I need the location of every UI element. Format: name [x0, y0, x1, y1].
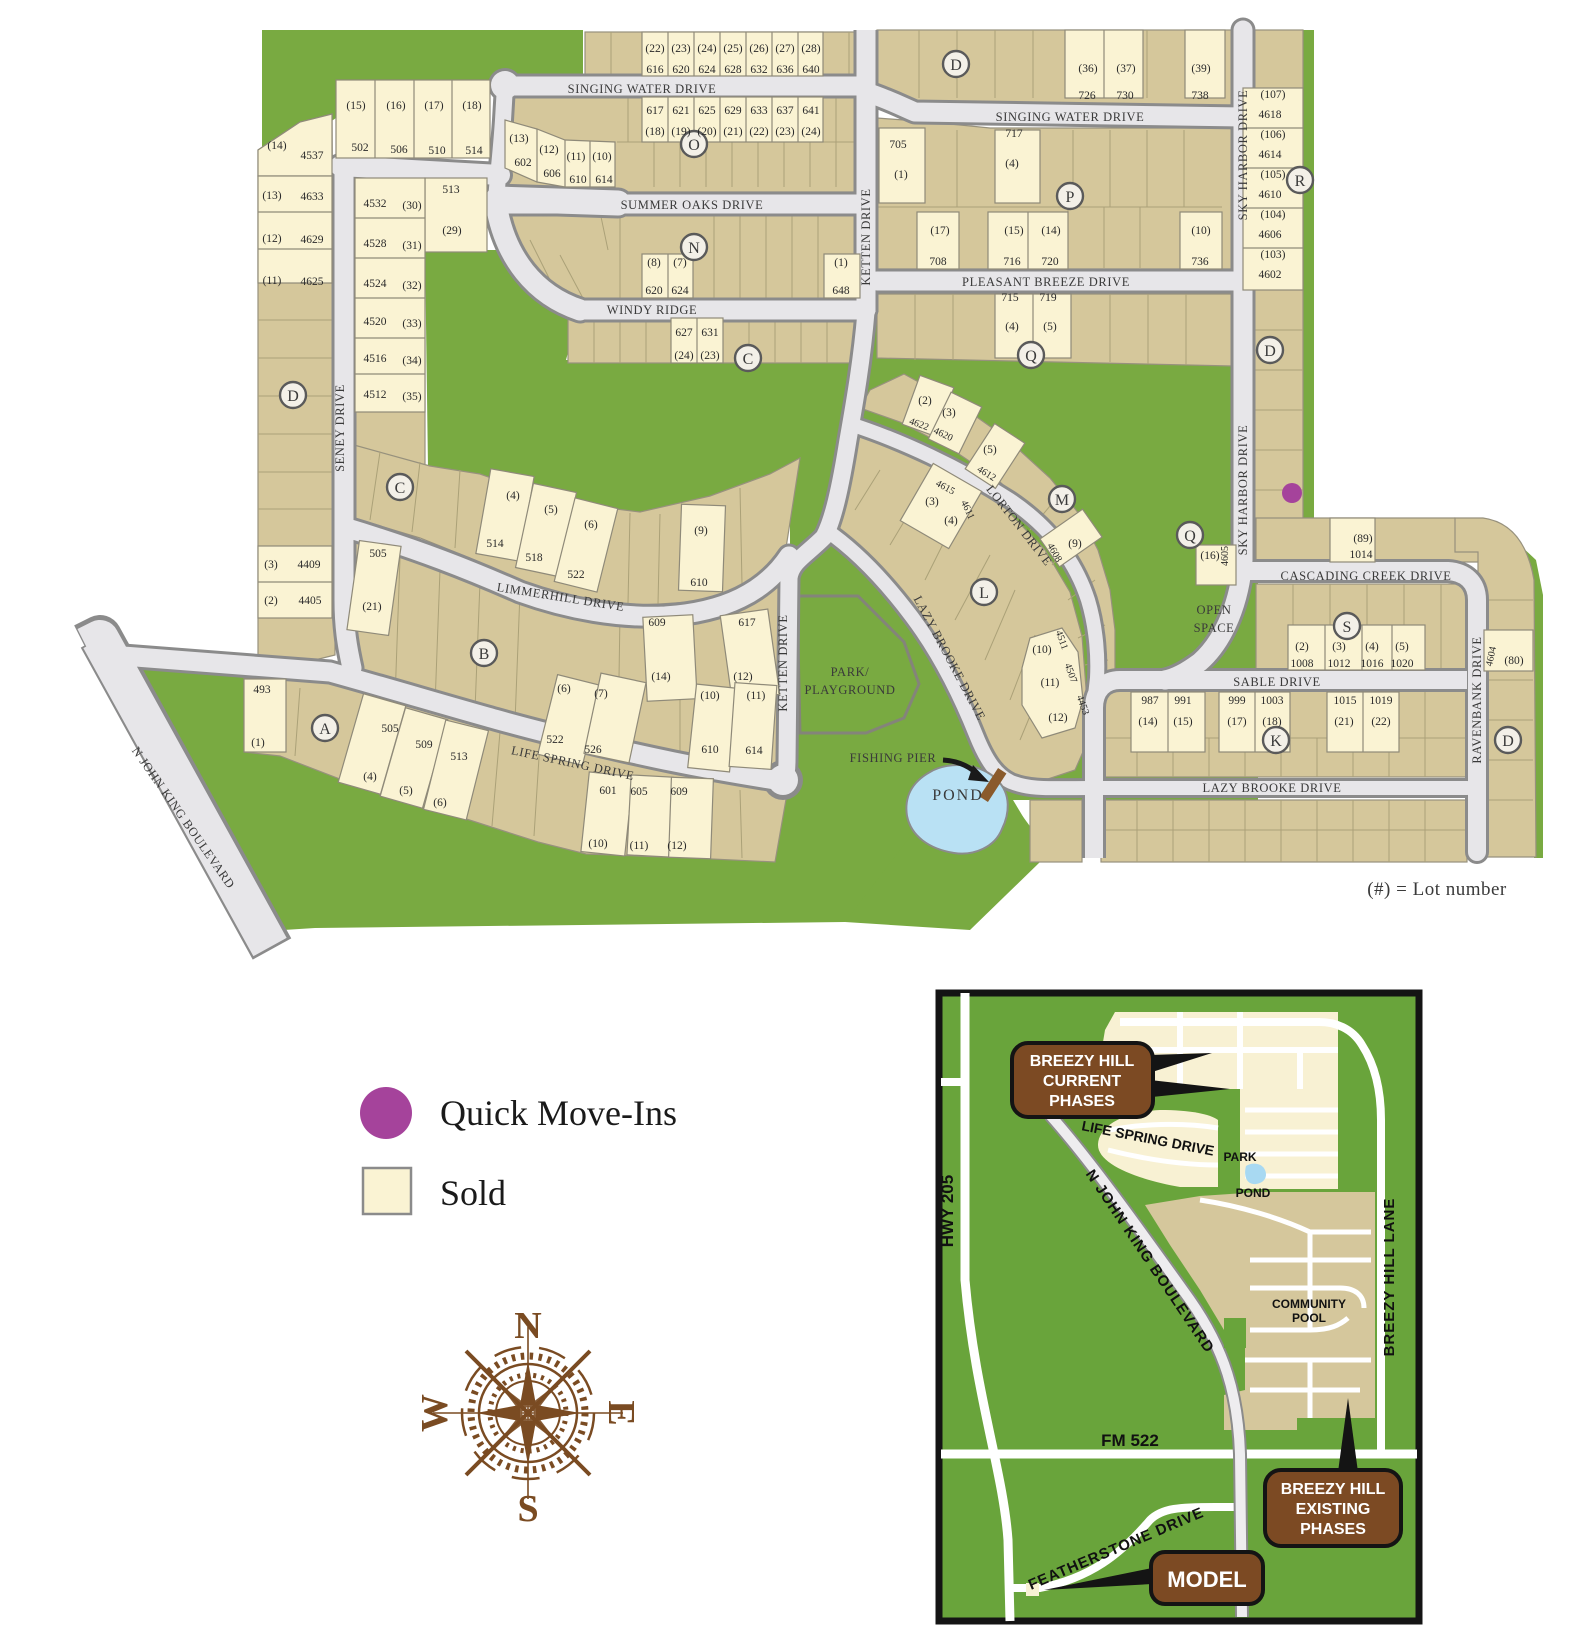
svg-text:614: 614 [595, 174, 613, 186]
svg-text:(11): (11) [1041, 677, 1060, 689]
svg-text:C: C [395, 480, 406, 497]
svg-text:(37): (37) [1116, 63, 1135, 75]
svg-text:4633: 4633 [301, 191, 324, 203]
svg-text:606: 606 [543, 168, 561, 180]
svg-text:631: 631 [701, 327, 719, 339]
svg-text:628: 628 [724, 64, 742, 76]
svg-text:M: M [1055, 492, 1069, 509]
svg-text:736: 736 [1191, 256, 1209, 268]
svg-text:4618: 4618 [1259, 109, 1282, 121]
svg-text:PLAYGROUND: PLAYGROUND [805, 683, 896, 697]
svg-text:(11): (11) [567, 151, 586, 163]
svg-text:(7): (7) [594, 688, 608, 700]
svg-text:OPEN: OPEN [1196, 603, 1231, 617]
svg-text:717: 717 [1005, 128, 1023, 140]
svg-text:522: 522 [567, 569, 585, 581]
svg-text:648: 648 [832, 285, 850, 297]
svg-text:(19): (19) [671, 126, 690, 138]
svg-text:(10): (10) [592, 151, 611, 163]
svg-text:(5): (5) [399, 785, 413, 797]
svg-text:522: 522 [546, 734, 564, 746]
svg-text:R: R [1295, 173, 1306, 190]
svg-text:4512: 4512 [364, 389, 387, 401]
svg-text:S: S [517, 1488, 538, 1530]
svg-text:502: 502 [351, 142, 369, 154]
svg-text:506: 506 [390, 144, 408, 156]
svg-text:(23): (23) [700, 350, 719, 362]
svg-text:(105): (105) [1261, 169, 1286, 181]
svg-text:(103): (103) [1261, 249, 1286, 261]
svg-text:EXISTING: EXISTING [1296, 1501, 1371, 1518]
svg-text:(30): (30) [402, 200, 421, 212]
svg-text:BREEZY HILL LANE: BREEZY HILL LANE [1381, 1198, 1398, 1357]
svg-text:991: 991 [1174, 695, 1192, 707]
svg-text:(1): (1) [894, 169, 908, 181]
svg-text:SKY HARBOR DRIVE: SKY HARBOR DRIVE [1236, 90, 1250, 221]
svg-text:POND: POND [1236, 1186, 1271, 1200]
svg-text:(24): (24) [801, 126, 820, 138]
svg-text:4516: 4516 [364, 353, 387, 365]
svg-text:E: E [600, 1400, 642, 1425]
svg-text:PHASES: PHASES [1300, 1521, 1366, 1538]
svg-text:(10): (10) [700, 690, 719, 702]
svg-text:(104): (104) [1261, 209, 1286, 221]
svg-text:(6): (6) [433, 797, 447, 809]
svg-text:SKY HARBOR DRIVE: SKY HARBOR DRIVE [1236, 425, 1250, 556]
svg-text:(5): (5) [983, 444, 997, 456]
svg-text:(10): (10) [1032, 644, 1051, 656]
svg-text:Quick Move-Ins: Quick Move-Ins [440, 1093, 677, 1133]
svg-text:(12): (12) [667, 840, 686, 852]
svg-text:(2): (2) [1295, 641, 1309, 653]
svg-text:1016: 1016 [1361, 658, 1384, 670]
svg-text:(15): (15) [1004, 225, 1023, 237]
svg-text:(2): (2) [264, 595, 278, 607]
svg-text:617: 617 [646, 105, 664, 117]
svg-text:CASCADING CREEK DRIVE: CASCADING CREEK DRIVE [1281, 569, 1452, 583]
svg-text:(9): (9) [694, 525, 708, 537]
svg-text:(34): (34) [402, 355, 421, 367]
svg-text:(3): (3) [1332, 641, 1346, 653]
svg-text:(18): (18) [1262, 716, 1281, 728]
svg-text:(27): (27) [775, 43, 794, 55]
svg-text:1020: 1020 [1391, 658, 1414, 670]
svg-text:4602: 4602 [1259, 269, 1282, 281]
svg-text:(4): (4) [1365, 641, 1379, 653]
svg-text:509: 509 [415, 739, 433, 751]
svg-text:(107): (107) [1261, 89, 1286, 101]
svg-text:(1): (1) [251, 737, 265, 749]
svg-text:(21): (21) [1334, 716, 1353, 728]
svg-text:(15): (15) [1173, 716, 1192, 728]
svg-text:(5): (5) [1395, 641, 1409, 653]
svg-text:715: 715 [1001, 292, 1019, 304]
svg-text:513: 513 [442, 184, 460, 196]
svg-text:D: D [1264, 343, 1276, 360]
svg-text:636: 636 [776, 64, 794, 76]
svg-text:637: 637 [776, 105, 794, 117]
svg-text:987: 987 [1141, 695, 1159, 707]
svg-text:(35): (35) [402, 391, 421, 403]
svg-text:1019: 1019 [1370, 695, 1393, 707]
svg-text:705: 705 [889, 139, 907, 151]
svg-text:(13): (13) [262, 190, 281, 202]
svg-text:726: 726 [1078, 90, 1096, 102]
svg-text:D: D [950, 57, 962, 74]
svg-text:4524: 4524 [364, 278, 387, 290]
svg-text:641: 641 [802, 105, 820, 117]
svg-text:(6): (6) [557, 683, 571, 695]
svg-text:P: P [1066, 189, 1075, 206]
svg-text:(18): (18) [462, 100, 481, 112]
svg-text:4610: 4610 [1259, 189, 1282, 201]
svg-text:(21): (21) [362, 601, 381, 613]
svg-text:505: 505 [369, 548, 387, 560]
svg-text:MODEL: MODEL [1167, 1567, 1246, 1592]
svg-text:POND: POND [932, 787, 984, 804]
svg-text:SENEY DRIVE: SENEY DRIVE [333, 384, 347, 472]
svg-text:(11): (11) [747, 690, 766, 702]
svg-text:(18): (18) [645, 126, 664, 138]
svg-text:(26): (26) [749, 43, 768, 55]
svg-text:(4): (4) [506, 490, 520, 502]
svg-text:(14): (14) [1138, 716, 1157, 728]
svg-text:(12): (12) [262, 233, 281, 245]
svg-text:N: N [514, 1305, 541, 1347]
svg-text:PHASES: PHASES [1049, 1093, 1115, 1110]
svg-text:W: W [414, 1394, 456, 1432]
svg-text:FM 522: FM 522 [1101, 1431, 1159, 1450]
svg-text:1008: 1008 [1291, 658, 1314, 670]
svg-text:999: 999 [1228, 695, 1246, 707]
svg-text:609: 609 [670, 786, 688, 798]
svg-text:(4): (4) [1005, 321, 1019, 333]
svg-text:POOL: POOL [1292, 1311, 1326, 1325]
svg-text:(10): (10) [588, 838, 607, 850]
svg-text:(13): (13) [509, 133, 528, 145]
svg-text:620: 620 [672, 64, 690, 76]
svg-text:(5): (5) [1043, 321, 1057, 333]
svg-text:(17): (17) [424, 100, 443, 112]
svg-text:610: 610 [701, 744, 719, 756]
svg-text:SINGING WATER DRIVE: SINGING WATER DRIVE [568, 82, 717, 96]
svg-text:WINDY RIDGE: WINDY RIDGE [607, 303, 698, 317]
svg-text:(31): (31) [402, 240, 421, 252]
svg-text:COMMUNITY: COMMUNITY [1272, 1297, 1346, 1311]
svg-text:505: 505 [381, 723, 399, 735]
svg-text:PARK: PARK [1223, 1150, 1256, 1164]
svg-text:617: 617 [738, 617, 756, 629]
svg-text:SINGING WATER DRIVE: SINGING WATER DRIVE [996, 110, 1145, 124]
svg-text:(6): (6) [584, 519, 598, 531]
svg-text:624: 624 [671, 285, 689, 297]
svg-text:FISHING PIER: FISHING PIER [850, 751, 937, 765]
svg-text:719: 719 [1039, 292, 1057, 304]
svg-text:510: 510 [428, 145, 446, 157]
svg-text:4405: 4405 [299, 595, 322, 607]
svg-text:610: 610 [569, 174, 587, 186]
svg-text:4520: 4520 [364, 316, 387, 328]
svg-text:4409: 4409 [298, 559, 321, 571]
svg-text:4537: 4537 [301, 150, 324, 162]
svg-text:493: 493 [253, 684, 271, 696]
svg-text:1012: 1012 [1328, 658, 1351, 670]
svg-text:716: 716 [1003, 256, 1021, 268]
svg-text:1014: 1014 [1350, 549, 1373, 561]
svg-text:O: O [688, 137, 700, 154]
svg-text:(2): (2) [918, 395, 932, 407]
svg-text:N: N [688, 240, 700, 257]
svg-text:SABLE DRIVE: SABLE DRIVE [1233, 675, 1321, 689]
svg-text:(25): (25) [723, 43, 742, 55]
svg-text:(7): (7) [673, 257, 687, 269]
svg-text:(4): (4) [1005, 158, 1019, 170]
svg-text:1015: 1015 [1334, 695, 1357, 707]
svg-text:610: 610 [690, 577, 708, 589]
svg-text:(20): (20) [697, 126, 716, 138]
svg-text:601: 601 [599, 785, 617, 797]
svg-text:(4): (4) [944, 515, 958, 527]
svg-text:4614: 4614 [1259, 149, 1282, 161]
svg-text:C: C [743, 351, 754, 368]
svg-text:(17): (17) [1227, 716, 1246, 728]
svg-text:708: 708 [929, 256, 947, 268]
svg-text:605: 605 [630, 786, 648, 798]
svg-text:(11): (11) [263, 275, 282, 287]
svg-text:(89): (89) [1353, 533, 1372, 545]
svg-text:518: 518 [525, 552, 543, 564]
svg-text:526: 526 [584, 744, 602, 756]
svg-text:(36): (36) [1078, 63, 1097, 75]
svg-text:(1): (1) [834, 257, 848, 269]
svg-text:4625: 4625 [301, 276, 324, 288]
svg-text:620: 620 [645, 285, 663, 297]
svg-text:640: 640 [802, 64, 820, 76]
svg-text:(17): (17) [930, 225, 949, 237]
svg-text:(14): (14) [651, 671, 670, 683]
svg-text:1003: 1003 [1261, 695, 1284, 707]
svg-text:D: D [287, 388, 299, 405]
svg-text:(3): (3) [264, 559, 278, 571]
svg-text:(11): (11) [630, 840, 649, 852]
svg-text:(16): (16) [386, 100, 405, 112]
svg-text:SUMMER OAKS DRIVE: SUMMER OAKS DRIVE [621, 198, 764, 212]
svg-text:(22): (22) [749, 126, 768, 138]
svg-text:(12): (12) [539, 144, 558, 156]
svg-text:B: B [479, 646, 490, 663]
svg-text:4605: 4605 [1220, 546, 1231, 566]
svg-text:513: 513 [450, 751, 468, 763]
svg-text:738: 738 [1191, 90, 1209, 102]
svg-text:L: L [979, 585, 989, 602]
svg-text:Sold: Sold [440, 1173, 506, 1213]
svg-text:514: 514 [465, 145, 483, 157]
svg-text:(14): (14) [267, 140, 286, 152]
svg-text:CURRENT: CURRENT [1043, 1073, 1121, 1090]
svg-text:(22): (22) [645, 43, 664, 55]
svg-text:627: 627 [675, 327, 693, 339]
svg-text:KETTEN DRIVE: KETTEN DRIVE [859, 188, 873, 285]
svg-text:(9): (9) [1068, 538, 1082, 550]
svg-text:(28): (28) [801, 43, 820, 55]
svg-text:633: 633 [750, 105, 768, 117]
svg-text:(23): (23) [671, 43, 690, 55]
svg-text:629: 629 [724, 105, 742, 117]
svg-text:614: 614 [745, 745, 763, 757]
svg-text:(10): (10) [1191, 225, 1210, 237]
svg-text:4629: 4629 [301, 234, 324, 246]
svg-text:4532: 4532 [364, 198, 387, 210]
svg-text:HWY 205: HWY 205 [938, 1175, 957, 1247]
svg-text:(39): (39) [1191, 63, 1210, 75]
svg-text:(3): (3) [925, 496, 939, 508]
svg-text:4606: 4606 [1259, 229, 1282, 241]
svg-text:624: 624 [698, 64, 716, 76]
svg-text:(23): (23) [775, 126, 794, 138]
svg-text:Q: Q [1025, 348, 1037, 365]
svg-text:(8): (8) [647, 257, 661, 269]
svg-text:KETTEN DRIVE: KETTEN DRIVE [776, 614, 790, 711]
svg-text:(24): (24) [674, 350, 693, 362]
svg-text:A: A [319, 721, 331, 738]
svg-text:Q: Q [1184, 528, 1196, 545]
svg-text:(32): (32) [402, 280, 421, 292]
svg-text:(22): (22) [1371, 716, 1390, 728]
svg-text:(12): (12) [733, 671, 752, 683]
svg-text:RAVENBANK DRIVE: RAVENBANK DRIVE [1470, 636, 1484, 763]
svg-text:(24): (24) [697, 43, 716, 55]
svg-text:K: K [1270, 733, 1282, 750]
svg-text:(14): (14) [1041, 225, 1060, 237]
svg-text:SPACE: SPACE [1194, 621, 1235, 635]
svg-text:(29): (29) [442, 225, 461, 237]
svg-text:730: 730 [1116, 90, 1134, 102]
svg-text:(#) = Lot number: (#) = Lot number [1367, 879, 1507, 900]
svg-text:616: 616 [646, 64, 664, 76]
svg-text:S: S [1343, 619, 1352, 636]
svg-text:(16): (16) [1200, 550, 1219, 562]
svg-text:LAZY BROOKE DRIVE: LAZY BROOKE DRIVE [1203, 781, 1342, 795]
svg-text:PARK/: PARK/ [831, 665, 870, 679]
svg-text:(80): (80) [1504, 655, 1523, 667]
svg-text:720: 720 [1041, 256, 1059, 268]
svg-text:625: 625 [698, 105, 716, 117]
svg-text:602: 602 [514, 157, 532, 169]
svg-text:609: 609 [648, 617, 666, 629]
svg-text:(12): (12) [1048, 712, 1067, 724]
svg-text:632: 632 [750, 64, 768, 76]
svg-text:D: D [1502, 733, 1514, 750]
svg-text:(5): (5) [544, 504, 558, 516]
svg-text:(106): (106) [1261, 129, 1286, 141]
svg-text:621: 621 [672, 105, 690, 117]
svg-text:(4): (4) [363, 771, 377, 783]
svg-text:514: 514 [486, 538, 504, 550]
svg-text:(21): (21) [723, 126, 742, 138]
svg-text:4528: 4528 [364, 238, 387, 250]
svg-text:(33): (33) [402, 318, 421, 330]
svg-text:(15): (15) [346, 100, 365, 112]
svg-text:BREEZY HILL: BREEZY HILL [1030, 1053, 1135, 1070]
svg-text:PLEASANT BREEZE DRIVE: PLEASANT BREEZE DRIVE [962, 275, 1130, 289]
svg-text:BREEZY HILL: BREEZY HILL [1281, 1481, 1386, 1498]
svg-text:(3): (3) [942, 407, 956, 419]
